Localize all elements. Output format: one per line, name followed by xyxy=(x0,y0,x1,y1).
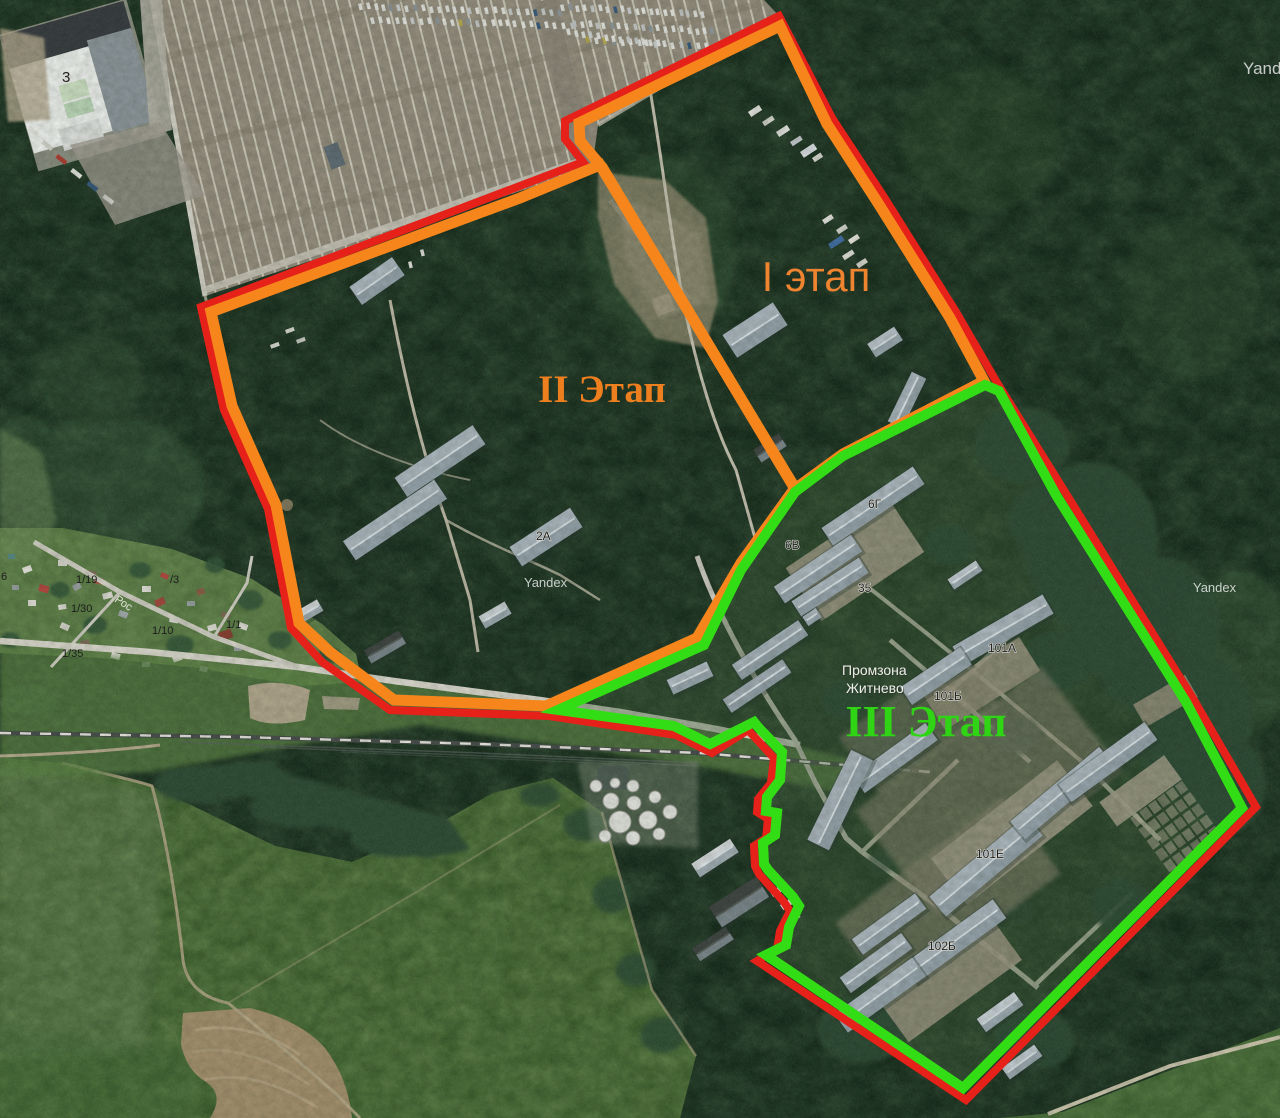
svg-text:6Г: 6Г xyxy=(868,497,882,511)
svg-text:Yandex: Yandex xyxy=(1243,59,1280,78)
svg-text:I этап: I этап xyxy=(762,253,871,300)
svg-text:III Этап: III Этап xyxy=(845,697,1006,746)
svg-text:Житнево: Житнево xyxy=(846,680,904,696)
svg-text:1/19: 1/19 xyxy=(76,574,97,586)
svg-text:102Б: 102Б xyxy=(928,939,956,953)
svg-text:Промзона: Промзона xyxy=(842,662,907,678)
svg-text:II Этап: II Этап xyxy=(538,368,666,411)
svg-text:1/10: 1/10 xyxy=(152,625,173,637)
svg-text:2А: 2А xyxy=(536,529,551,543)
svg-text:35: 35 xyxy=(858,581,872,595)
svg-text:Yandex: Yandex xyxy=(1193,580,1237,595)
svg-text:6: 6 xyxy=(1,571,7,583)
svg-text:101Е: 101Е xyxy=(976,847,1004,861)
svg-text:/3: /3 xyxy=(170,574,179,586)
svg-text:6В: 6В xyxy=(785,538,800,552)
svg-text:1/30: 1/30 xyxy=(71,603,92,615)
svg-text:101Б: 101Б xyxy=(934,689,962,703)
svg-text:Yandex: Yandex xyxy=(524,575,568,590)
svg-text:101А: 101А xyxy=(988,641,1016,655)
svg-text:1/35: 1/35 xyxy=(62,648,83,660)
svg-text:1/1: 1/1 xyxy=(226,619,241,631)
svg-text:3: 3 xyxy=(62,69,70,86)
